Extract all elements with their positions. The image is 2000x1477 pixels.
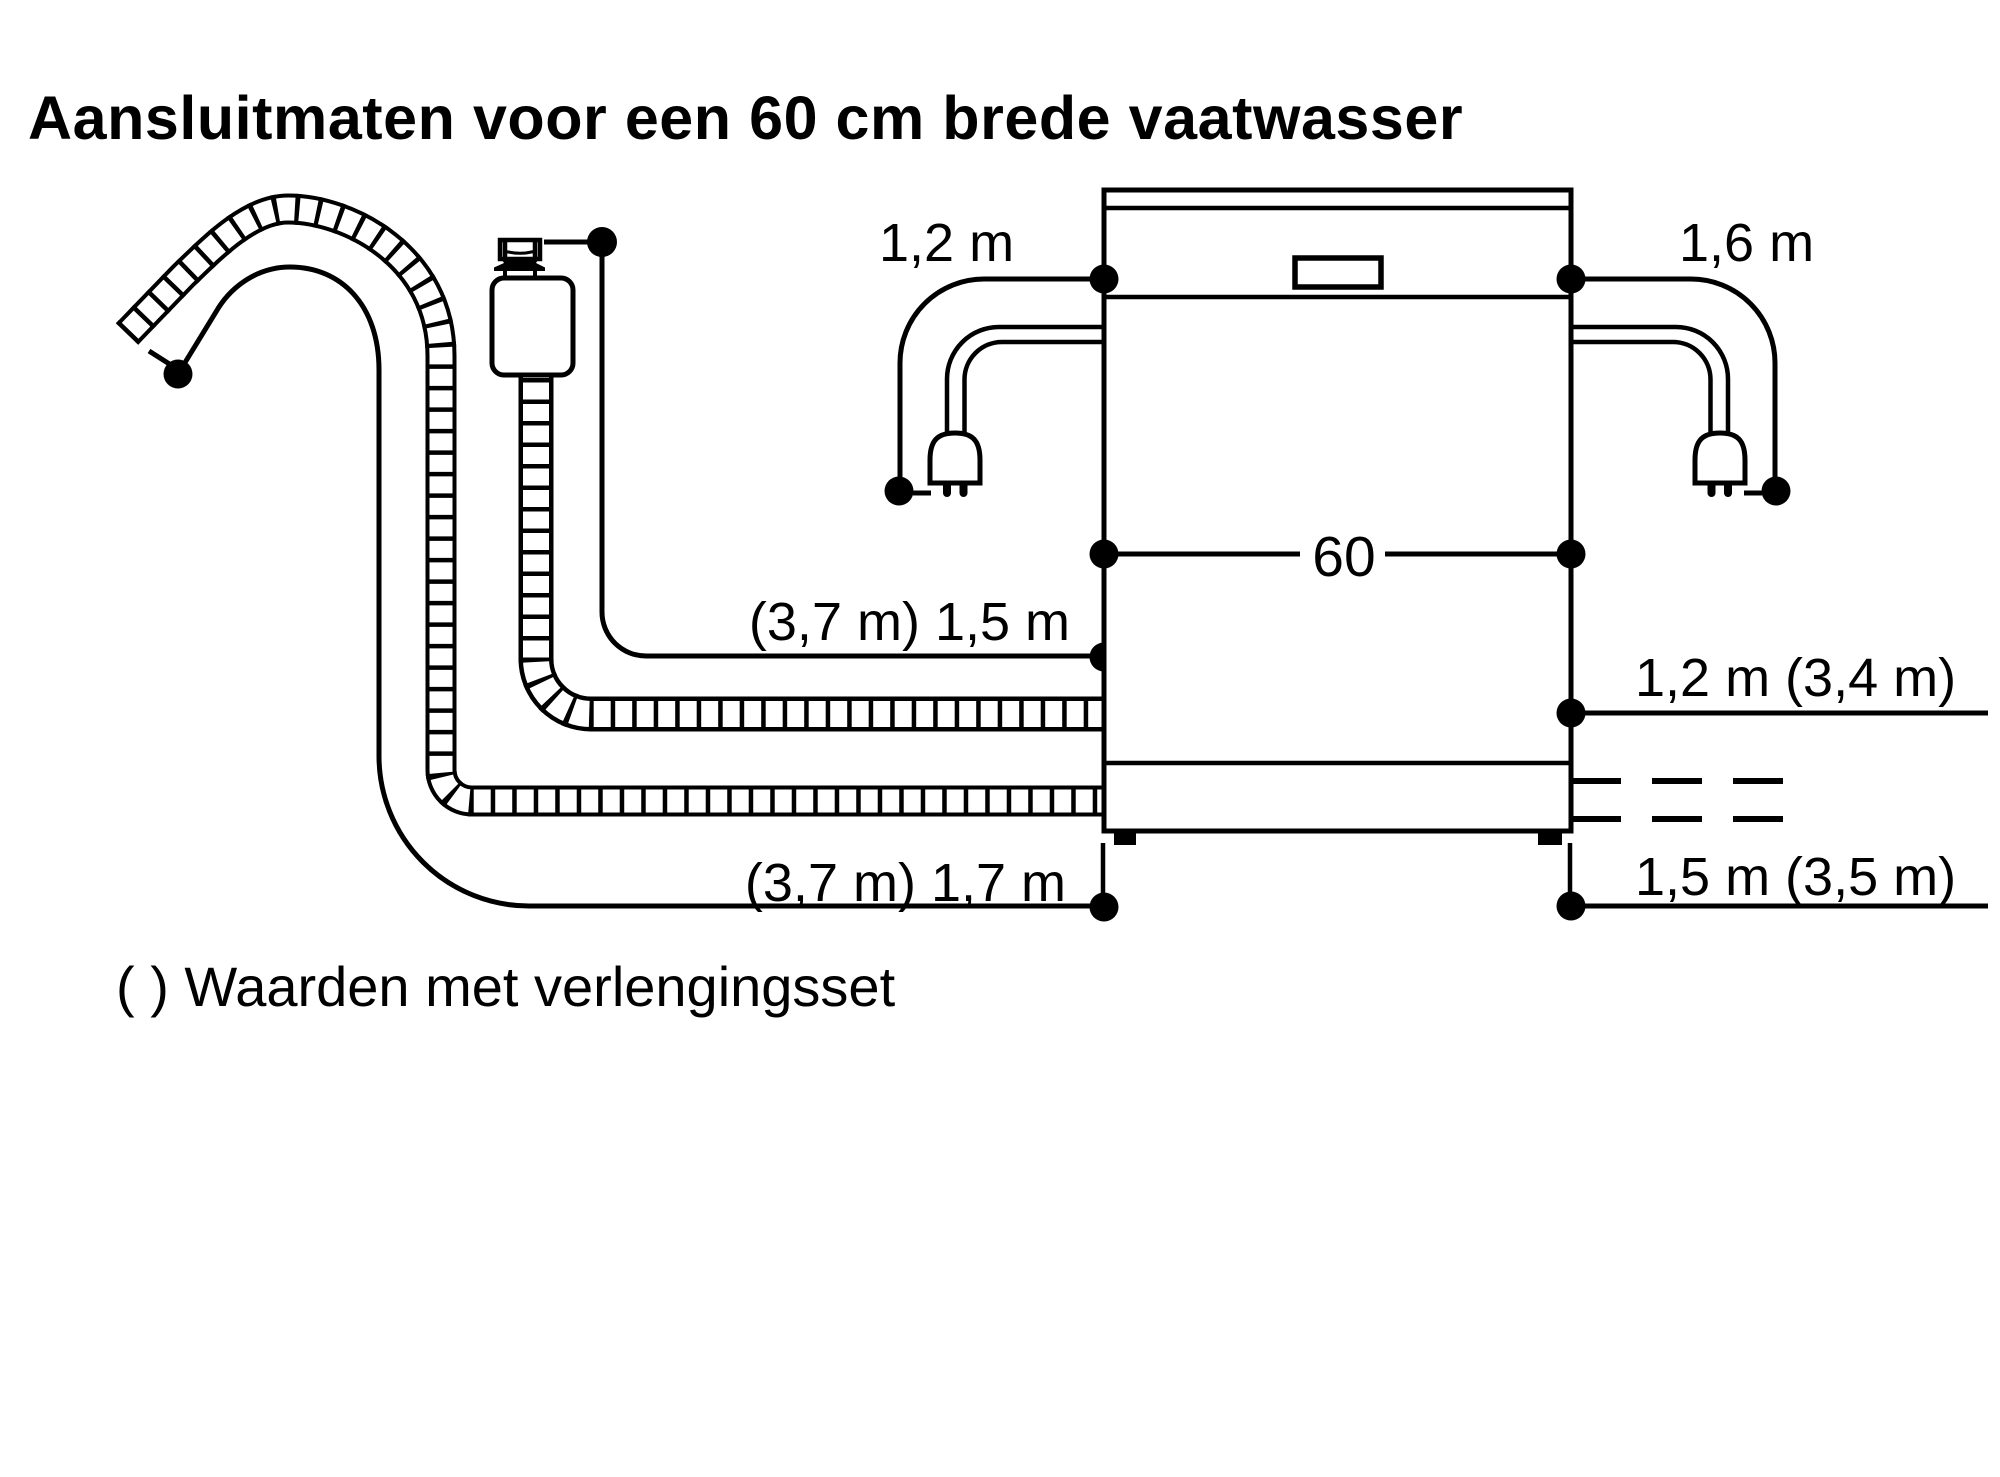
svg-text:Aansluitmaten voor een 60 cm b: Aansluitmaten voor een 60 cm brede vaatw… xyxy=(28,84,1463,152)
svg-text:1,6 m: 1,6 m xyxy=(1679,213,1814,273)
svg-text:(3,7 m) 1,5 m: (3,7 m) 1,5 m xyxy=(749,592,1070,652)
svg-text:( ) Waarden met verlengingsset: ( ) Waarden met verlengingsset xyxy=(116,955,896,1018)
svg-text:(3,7 m) 1,7 m: (3,7 m) 1,7 m xyxy=(745,853,1066,913)
svg-text:60: 60 xyxy=(1312,525,1375,589)
svg-text:1,5 m (3,5 m): 1,5 m (3,5 m) xyxy=(1635,847,1956,907)
svg-text:1,2 m: 1,2 m xyxy=(879,213,1014,273)
svg-text:1,2 m (3,4 m): 1,2 m (3,4 m) xyxy=(1635,648,1956,708)
